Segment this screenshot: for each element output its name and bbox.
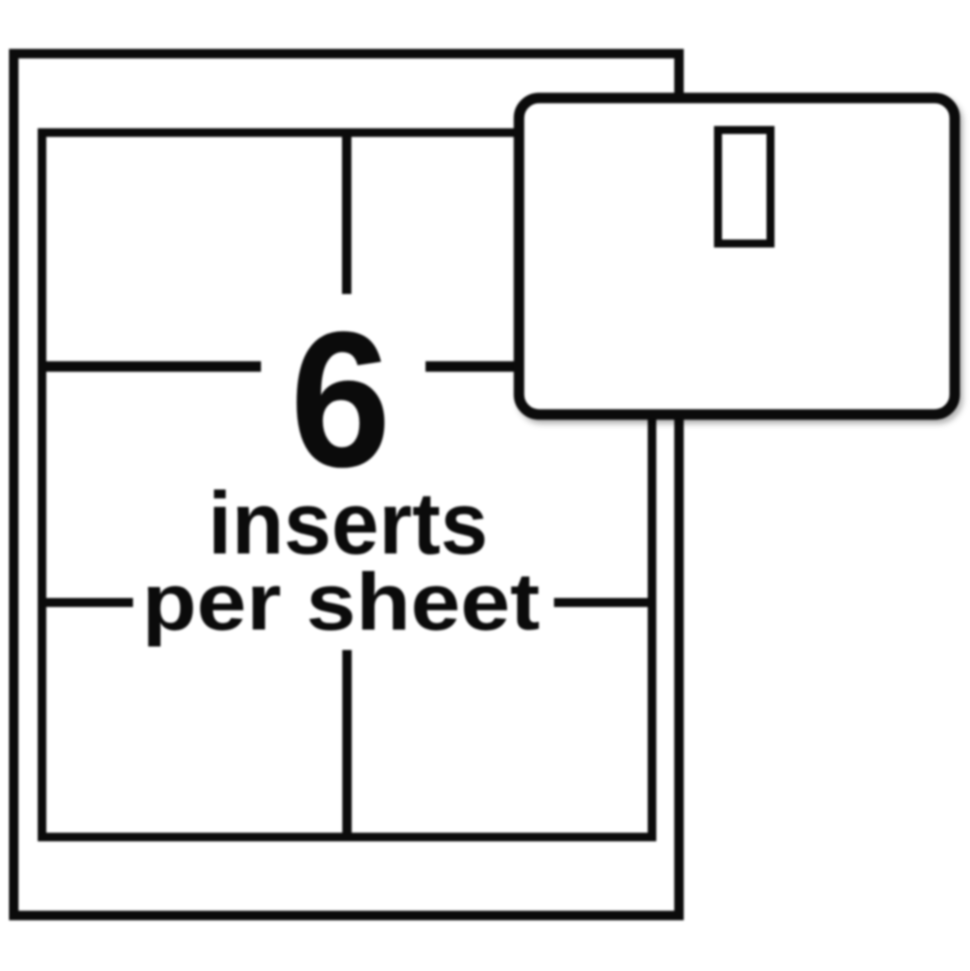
svg-text:per sheet: per sheet (142, 557, 540, 647)
